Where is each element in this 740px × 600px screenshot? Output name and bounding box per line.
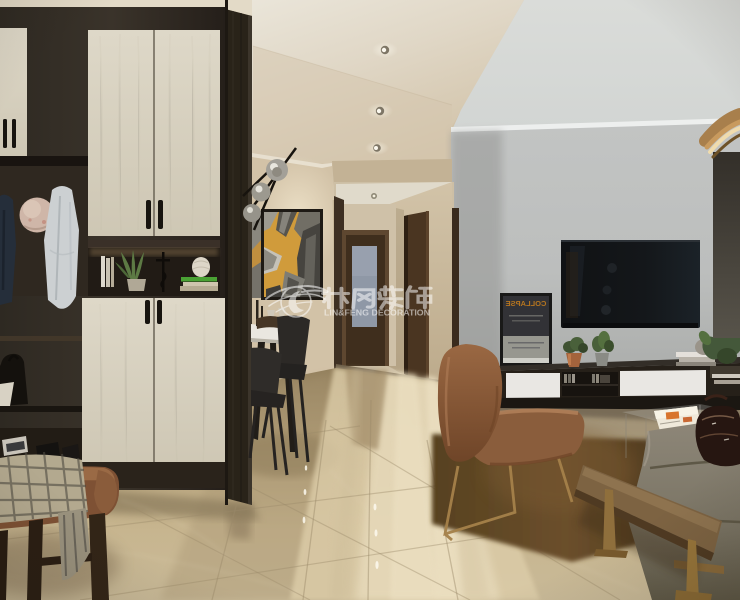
svg-text:LIN&FENG DECORATION: LIN&FENG DECORATION <box>324 309 430 318</box>
svg-text:COLLAPSE: COLLAPSE <box>506 299 547 308</box>
